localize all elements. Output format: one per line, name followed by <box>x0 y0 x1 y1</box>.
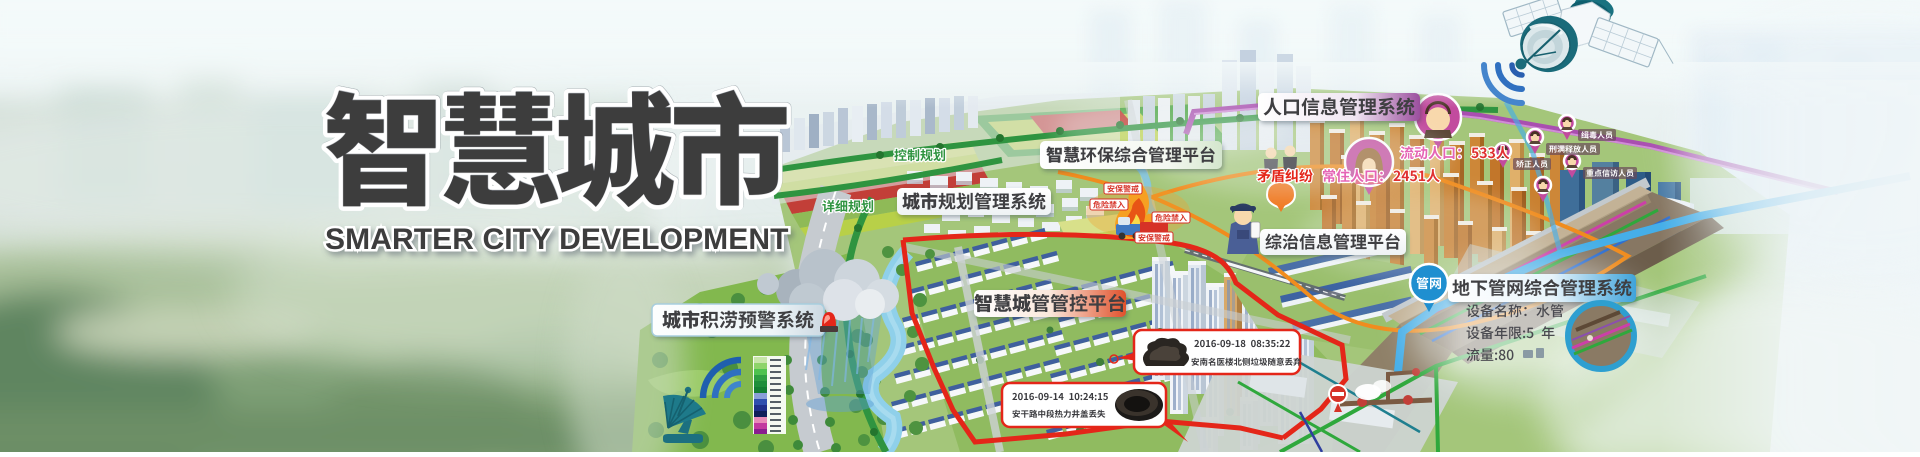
svg-text:SMARTER CITY DEVELOPMENT: SMARTER CITY DEVELOPMENT <box>325 223 789 256</box>
